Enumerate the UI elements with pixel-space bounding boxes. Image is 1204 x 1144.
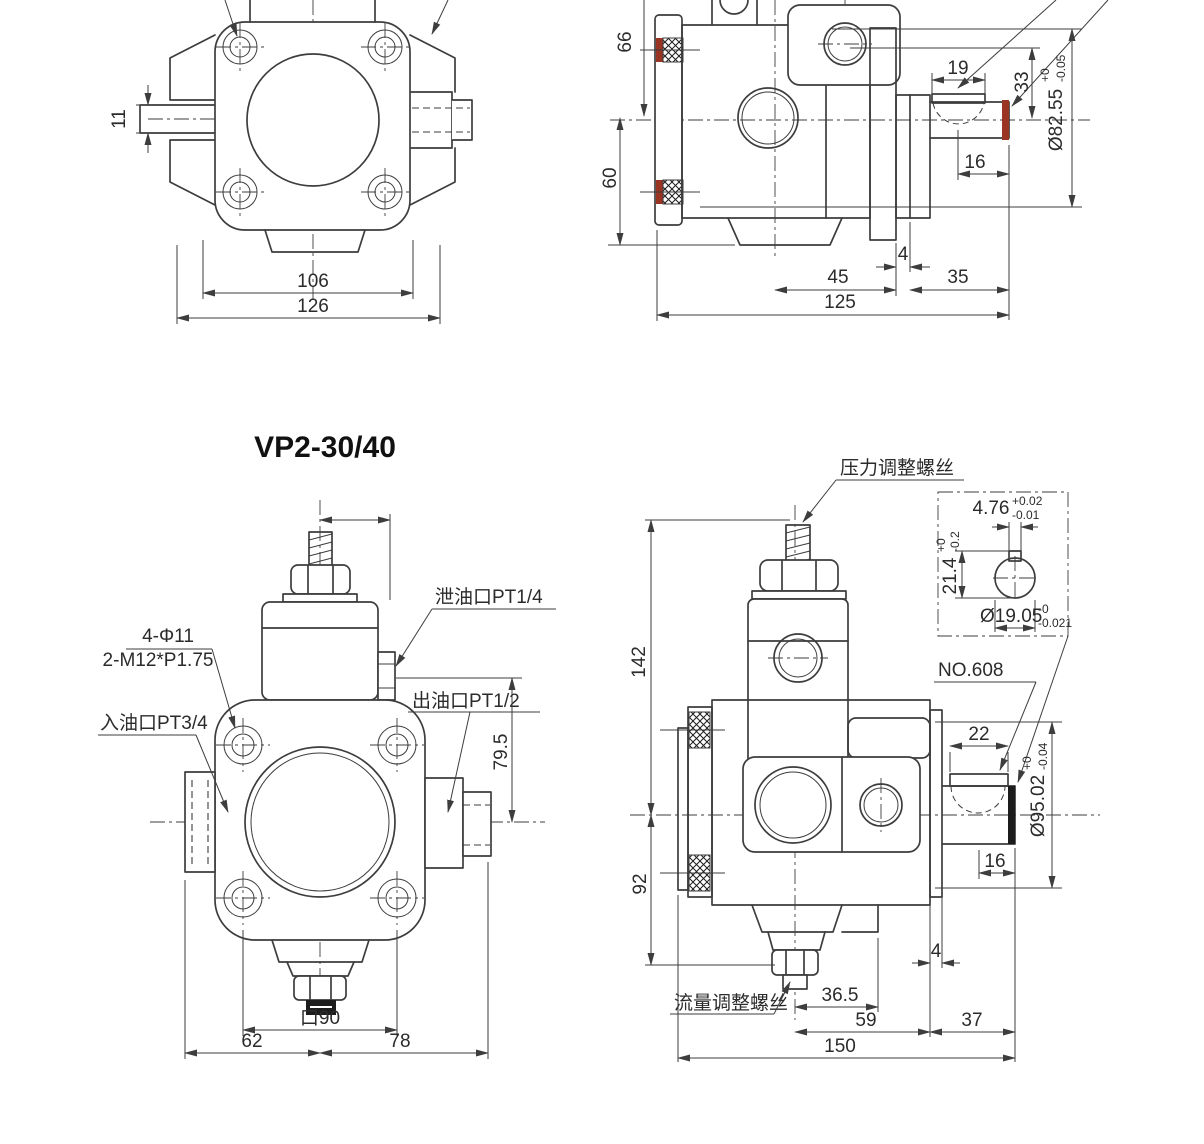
dim-60-label: 60 (600, 167, 621, 188)
key-number-label: NO.608 (938, 660, 1003, 681)
dim-106-label: 106 (297, 271, 329, 292)
dim-19-05-tol-lower: -0.021 (1038, 616, 1072, 630)
dim-78-label: 78 (389, 1031, 410, 1052)
drain-port-label: 泄油口PT1/4 (435, 586, 543, 608)
washer (283, 594, 357, 602)
port-block (788, 5, 900, 85)
dim-125-label: 125 (824, 292, 856, 313)
mount-threads-label: 2-M12*P1.75 (103, 650, 214, 671)
dim-37-label: 37 (961, 1010, 982, 1031)
dim-59-label: 59 (855, 1010, 876, 1031)
shaft-end-key-black (1008, 786, 1015, 844)
dim-4-bottom-label: 4 (931, 941, 942, 962)
dim-4-76-tol-upper: +0.02 (1012, 494, 1043, 508)
pump-technical-drawing: 11 106 126 (0, 0, 1204, 1144)
dim-142-label: 142 (629, 646, 650, 678)
outlet-port-label: 出油口PT1/2 (412, 690, 520, 712)
right-boss-step (452, 100, 472, 140)
dim-33-label: 33 (1012, 71, 1033, 92)
dim-4-76-tol-lower: -0.01 (1012, 508, 1040, 522)
dim-16-top-label: 16 (964, 152, 985, 173)
pilot-dia-95-tol-lower: -0.04 (1036, 742, 1050, 770)
drawing-title: VP2-30/40 (254, 431, 396, 464)
dim-92-label: 92 (630, 873, 651, 894)
pilot-dia-82-label: Ø82.55 (1046, 89, 1067, 151)
washer (752, 591, 846, 599)
dim-66-label: 66 (615, 31, 636, 52)
dim-4-76-label: 4.76 (973, 498, 1010, 519)
dim-19-05-tol-upper: -0 (1038, 602, 1049, 616)
lock-nut (760, 560, 838, 591)
pilot-dia-82-tol-lower: -0.05 (1054, 54, 1068, 82)
dim-62-label: 62 (241, 1031, 262, 1052)
right-boss (410, 92, 452, 148)
dim-4-top-label: 4 (898, 244, 909, 265)
inlet-boss (185, 772, 215, 872)
dim-21-4-tol-lower: -0.2 (948, 531, 962, 552)
pressure-screw-label: 压力调整螺丝 (840, 457, 954, 479)
dim-150-label: 150 (824, 1036, 856, 1057)
dim-square-90-label: 口90 (300, 1008, 340, 1029)
dim-21-4-label: 21.4 (940, 557, 961, 594)
dim-19-05-label: Ø19.05 (980, 606, 1042, 627)
lock-nut (291, 565, 350, 594)
flow-screw-label: 流量调整螺丝 (674, 992, 788, 1014)
dim-45-label: 45 (827, 267, 848, 288)
dim-79-5-label: 79.5 (491, 734, 512, 771)
drain-boss (378, 652, 395, 700)
pilot-dia-82-tol-upper: +0 (1038, 68, 1052, 82)
dim-35-label: 35 (947, 267, 968, 288)
dim-126-label: 126 (297, 296, 329, 317)
dim-16-bottom-label: 16 (984, 851, 1005, 872)
dim-36-5-label: 36.5 (822, 985, 859, 1006)
dim-19-label: 19 (947, 58, 968, 79)
outlet-boss (425, 778, 491, 868)
shaft-end-red-mark (1002, 100, 1009, 140)
dim-21-4-tol-upper: +0 (934, 538, 948, 552)
inlet-port-label: 入油口PT3/4 (100, 712, 208, 734)
flange-plate (215, 700, 425, 940)
dim-22-label: 22 (968, 724, 989, 745)
drawing-page: 11 106 126 (0, 0, 1204, 1144)
spring-housing (262, 602, 378, 700)
pilot-dia-95-label: Ø95.02 (1028, 775, 1049, 837)
dim-11-label: 11 (109, 109, 130, 129)
pilot-dia-95-tol-upper: +0 (1020, 756, 1034, 770)
mount-holes-label: 4-Φ11 (142, 626, 194, 647)
